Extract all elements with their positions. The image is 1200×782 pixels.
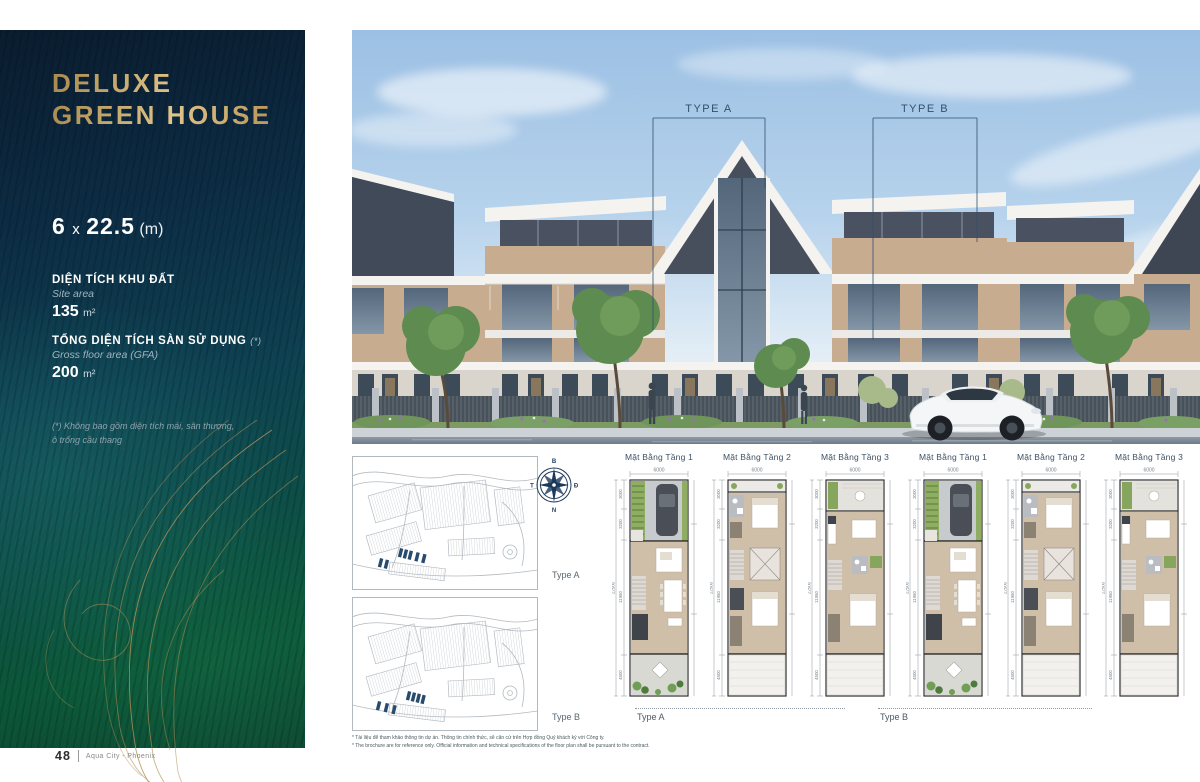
- gfa-label-vi: TỔNG DIỆN TÍCH SÀN SỬ DỤNG (*): [52, 335, 275, 347]
- site-area-label-en: Site area: [52, 288, 275, 300]
- svg-text:4500: 4500: [1108, 670, 1113, 680]
- gfa-unit: m²: [83, 368, 95, 380]
- gfa-block: TỔNG DIỆN TÍCH SÀN SỬ DỤNG (*) Gross flo…: [52, 335, 275, 382]
- svg-text:3200: 3200: [618, 519, 623, 529]
- plans-footnote-vi: * Tài liệu để tham khảo thông tin dự án.…: [352, 734, 670, 742]
- svg-text:6000: 6000: [653, 468, 664, 474]
- type-b-group-line: [878, 708, 1092, 709]
- sidebar-content: DELUXE GREEN HOUSE 6 x 22.5 (m) DIỆN TÍC…: [0, 30, 305, 447]
- dimension-separator: x: [72, 221, 80, 238]
- type-b-callout-label: TYPE B: [901, 103, 949, 115]
- svg-text:3200: 3200: [1108, 519, 1113, 529]
- svg-text:6000: 6000: [1143, 468, 1154, 474]
- gfa-label-en: Gross floor area (GFA): [52, 349, 275, 361]
- gfa-label-text: TỔNG DIỆN TÍCH SÀN SỬ DỤNG: [52, 335, 246, 347]
- svg-text:6000: 6000: [1045, 468, 1056, 474]
- plans-footnote: * Tài liệu để tham khảo thông tin dự án.…: [352, 734, 670, 750]
- compass-north: B: [552, 459, 557, 465]
- svg-text:3000: 3000: [1010, 489, 1015, 499]
- type-b-group-label: Type B: [880, 712, 908, 722]
- floor-plan-title: Mặt Bằng Tầng 3: [1115, 452, 1183, 462]
- floor-plan-title: Mặt Bằng Tầng 1: [625, 452, 693, 462]
- svg-text:3000: 3000: [1108, 489, 1113, 499]
- lot-width: 6: [52, 213, 66, 239]
- floor-plan-drawing-level3: 6000 3000 3200 11950 4500 22500: [1102, 464, 1196, 712]
- svg-text:11950: 11950: [1108, 591, 1113, 603]
- svg-text:22500: 22500: [906, 581, 910, 594]
- lot-depth: 22.5: [86, 213, 135, 239]
- page-title-line2: GREEN HOUSE: [52, 100, 275, 132]
- svg-text:3200: 3200: [1010, 519, 1015, 529]
- svg-text:11950: 11950: [814, 591, 819, 603]
- sidebar: DELUXE GREEN HOUSE 6 x 22.5 (m) DIỆN TÍC…: [0, 30, 305, 748]
- svg-text:22500: 22500: [1102, 581, 1106, 594]
- svg-text:22500: 22500: [808, 581, 812, 594]
- brochure-page: DELUXE GREEN HOUSE 6 x 22.5 (m) DIỆN TÍC…: [0, 0, 1200, 782]
- page-title: DELUXE GREEN HOUSE: [52, 68, 275, 131]
- svg-text:11950: 11950: [716, 591, 721, 603]
- type-a-group-line: [635, 708, 845, 709]
- sidewalk: [352, 428, 1200, 437]
- sidebar-footnote-line2: ô trống cầu thang: [52, 434, 275, 448]
- site-area-label-vi: DIỆN TÍCH KHU ĐẤT: [52, 274, 275, 286]
- svg-text:3000: 3000: [912, 489, 917, 499]
- floor-plan-title: Mặt Bằng Tầng 2: [723, 452, 791, 462]
- floor-plan-drawing-level1: 6000 3000 3200 11950 4500 22500: [906, 464, 1000, 712]
- site-map-b-label: Type B: [552, 712, 580, 722]
- floor-plan: Mặt Bằng Tầng 2 6000 3000 3200 11950 450…: [710, 452, 804, 712]
- svg-text:22500: 22500: [710, 581, 714, 594]
- svg-text:4500: 4500: [716, 670, 721, 680]
- svg-text:6000: 6000: [947, 468, 958, 474]
- gfa-note-mark: (*): [250, 336, 261, 346]
- floor-plan: Mặt Bằng Tầng 3 6000 3000 3200 11950 450…: [808, 452, 902, 712]
- footer-divider: [78, 750, 79, 762]
- compass-east: Đ: [574, 484, 579, 490]
- site-area-number: 135: [52, 303, 79, 320]
- svg-text:4500: 4500: [912, 670, 917, 680]
- dimension-unit: (m): [139, 221, 163, 238]
- floor-plan: Mặt Bằng Tầng 2 6000 3000 3200 11950 450…: [1004, 452, 1098, 712]
- floor-plan-drawing-level1: 6000 3000 3200 11950 4500 22500: [612, 464, 706, 712]
- plans-footnote-en: * The brochure are for reference only. O…: [352, 742, 670, 750]
- svg-text:3200: 3200: [814, 519, 819, 529]
- compass-icon: B Đ N T: [528, 455, 580, 513]
- sidebar-footnote-line1: (*) Không bao gồm diện tích mái, sân thư…: [52, 420, 275, 434]
- gfa-number: 200: [52, 364, 79, 381]
- floor-plan: Mặt Bằng Tầng 3 6000 3000 3200 11950 450…: [1102, 452, 1196, 712]
- svg-text:3000: 3000: [618, 489, 623, 499]
- site-map-a-label: Type A: [552, 570, 580, 580]
- svg-text:22500: 22500: [1004, 581, 1008, 594]
- site-area-block: DIỆN TÍCH KHU ĐẤT Site area 135 m²: [52, 274, 275, 321]
- svg-text:3200: 3200: [912, 519, 917, 529]
- svg-text:3000: 3000: [814, 489, 819, 499]
- svg-text:4500: 4500: [618, 670, 623, 680]
- floor-plan-drawing-level2: 6000 3000 3200 11950 4500 22500: [1004, 464, 1098, 712]
- svg-text:11950: 11950: [912, 591, 917, 603]
- site-area-unit: m²: [83, 307, 95, 319]
- svg-text:3000: 3000: [716, 489, 721, 499]
- page-footer: 48 Aqua City - Phoenix: [55, 749, 155, 763]
- floor-plan-title: Mặt Bằng Tầng 3: [821, 452, 889, 462]
- compass-south: N: [552, 508, 556, 513]
- page-title-line1: DELUXE: [52, 68, 275, 100]
- compass-west: T: [530, 484, 534, 490]
- type-a-callout-label: TYPE A: [685, 103, 733, 115]
- floor-plan-title: Mặt Bằng Tầng 1: [919, 452, 987, 462]
- render-scene: TYPE A TYPE B: [352, 30, 1200, 444]
- floor-plan-title: Mặt Bằng Tầng 2: [1017, 452, 1085, 462]
- svg-text:4500: 4500: [814, 670, 819, 680]
- site-map-type-b: [352, 597, 538, 731]
- footer-brand: Aqua City - Phoenix: [86, 753, 155, 760]
- floor-plan-drawing-level2: 6000 3000 3200 11950 4500 22500: [710, 464, 804, 712]
- floor-plans-row: Mặt Bằng Tầng 1 6000 3000 3200 11950 450…: [612, 452, 1200, 712]
- page-number: 48: [55, 749, 71, 763]
- svg-text:11950: 11950: [618, 591, 623, 603]
- lot-dimensions: 6 x 22.5 (m): [52, 213, 275, 240]
- svg-text:6000: 6000: [751, 468, 762, 474]
- svg-text:22500: 22500: [612, 581, 616, 594]
- svg-text:11950: 11950: [1010, 591, 1015, 603]
- site-map-type-a: [352, 456, 538, 590]
- site-area-value: 135 m²: [52, 303, 275, 321]
- svg-text:4500: 4500: [1010, 670, 1015, 680]
- building-render: TYPE A TYPE B: [352, 30, 1200, 444]
- svg-text:3200: 3200: [716, 519, 721, 529]
- gfa-value: 200 m²: [52, 364, 275, 382]
- svg-text:6000: 6000: [849, 468, 860, 474]
- sidebar-footnote: (*) Không bao gồm diện tích mái, sân thư…: [52, 420, 275, 447]
- floor-plan: Mặt Bằng Tầng 1 6000 3000 3200 11950 450…: [612, 452, 706, 712]
- floor-plan: Mặt Bằng Tầng 1 6000 3000 3200 11950 450…: [906, 452, 1000, 712]
- type-a-group-label: Type A: [637, 712, 665, 722]
- floor-plan-drawing-level3: 6000 3000 3200 11950 4500 22500: [808, 464, 902, 712]
